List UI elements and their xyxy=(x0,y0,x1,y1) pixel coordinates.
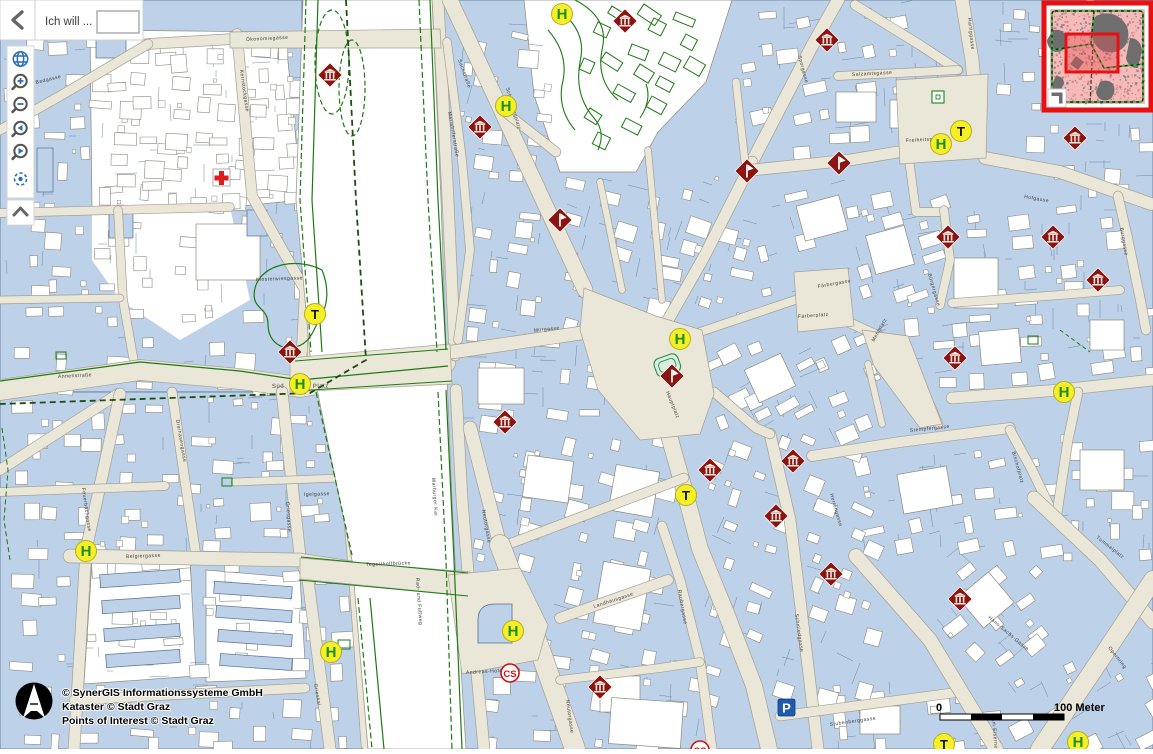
svg-text:Points of Interest © Stadt Gra: Points of Interest © Stadt Graz xyxy=(62,715,214,727)
svg-text:CS: CS xyxy=(503,669,516,680)
svg-text:© SynerGIS Informationssysteme: © SynerGIS Informationssysteme GmbH xyxy=(62,687,263,699)
svg-text:Kataster © Stadt Graz: Kataster © Stadt Graz xyxy=(62,701,170,713)
svg-text:Ich will ...: Ich will ... xyxy=(45,16,92,28)
svg-text:100 Meter: 100 Meter xyxy=(1054,702,1105,714)
svg-text:P: P xyxy=(782,701,791,716)
svg-text:Belgiergasse: Belgiergasse xyxy=(126,553,161,560)
svg-text:Platz: Platz xyxy=(313,383,329,390)
svg-text:Süd: Süd xyxy=(272,384,284,390)
svg-text:Igelgasse: Igelgasse xyxy=(304,491,330,498)
svg-text:0: 0 xyxy=(936,702,942,714)
